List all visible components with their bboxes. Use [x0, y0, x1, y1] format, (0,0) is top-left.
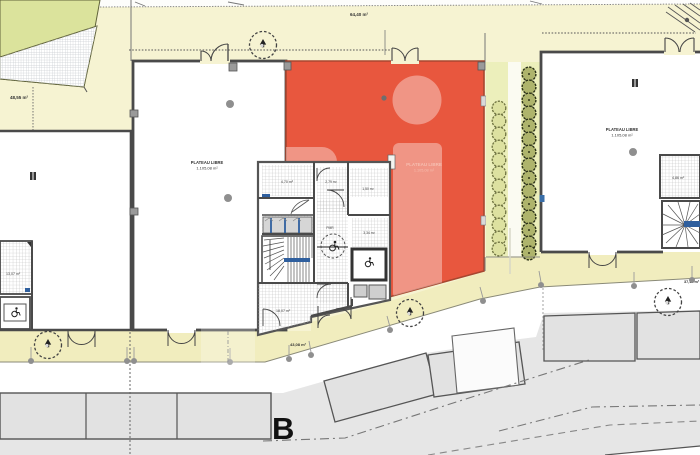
svg-text:4,86 m²: 4,86 m²: [672, 176, 685, 180]
svg-text:1.105,08 m²: 1.105,08 m²: [414, 169, 435, 173]
svg-text:2,79 m²: 2,79 m²: [325, 180, 337, 184]
svg-text:43,08 m²: 43,08 m²: [290, 342, 307, 347]
svg-text:B: B: [272, 411, 294, 446]
svg-text:1,50 m²: 1,50 m²: [362, 187, 374, 191]
svg-text:13,07 m²: 13,07 m²: [6, 272, 21, 276]
svg-text:PLATEAU LIBRE: PLATEAU LIBRE: [406, 162, 442, 167]
svg-text:PLATEAU LIBRE: PLATEAU LIBRE: [191, 160, 224, 165]
svg-text:1.105,08 m²: 1.105,08 m²: [611, 133, 633, 138]
svg-text:1.105,08 m²: 1.105,08 m²: [196, 166, 218, 171]
svg-text:48,55 m²: 48,55 m²: [10, 95, 29, 100]
svg-text:3,34 m²: 3,34 m²: [363, 231, 375, 235]
svg-text:PMR: PMR: [326, 226, 334, 230]
svg-text:4,70 m²: 4,70 m²: [281, 180, 294, 184]
svg-text:18,07 m²: 18,07 m²: [276, 309, 291, 313]
svg-text:64,40 m²: 64,40 m²: [350, 12, 369, 17]
svg-text:PLATEAU LIBRE: PLATEAU LIBRE: [606, 127, 639, 132]
